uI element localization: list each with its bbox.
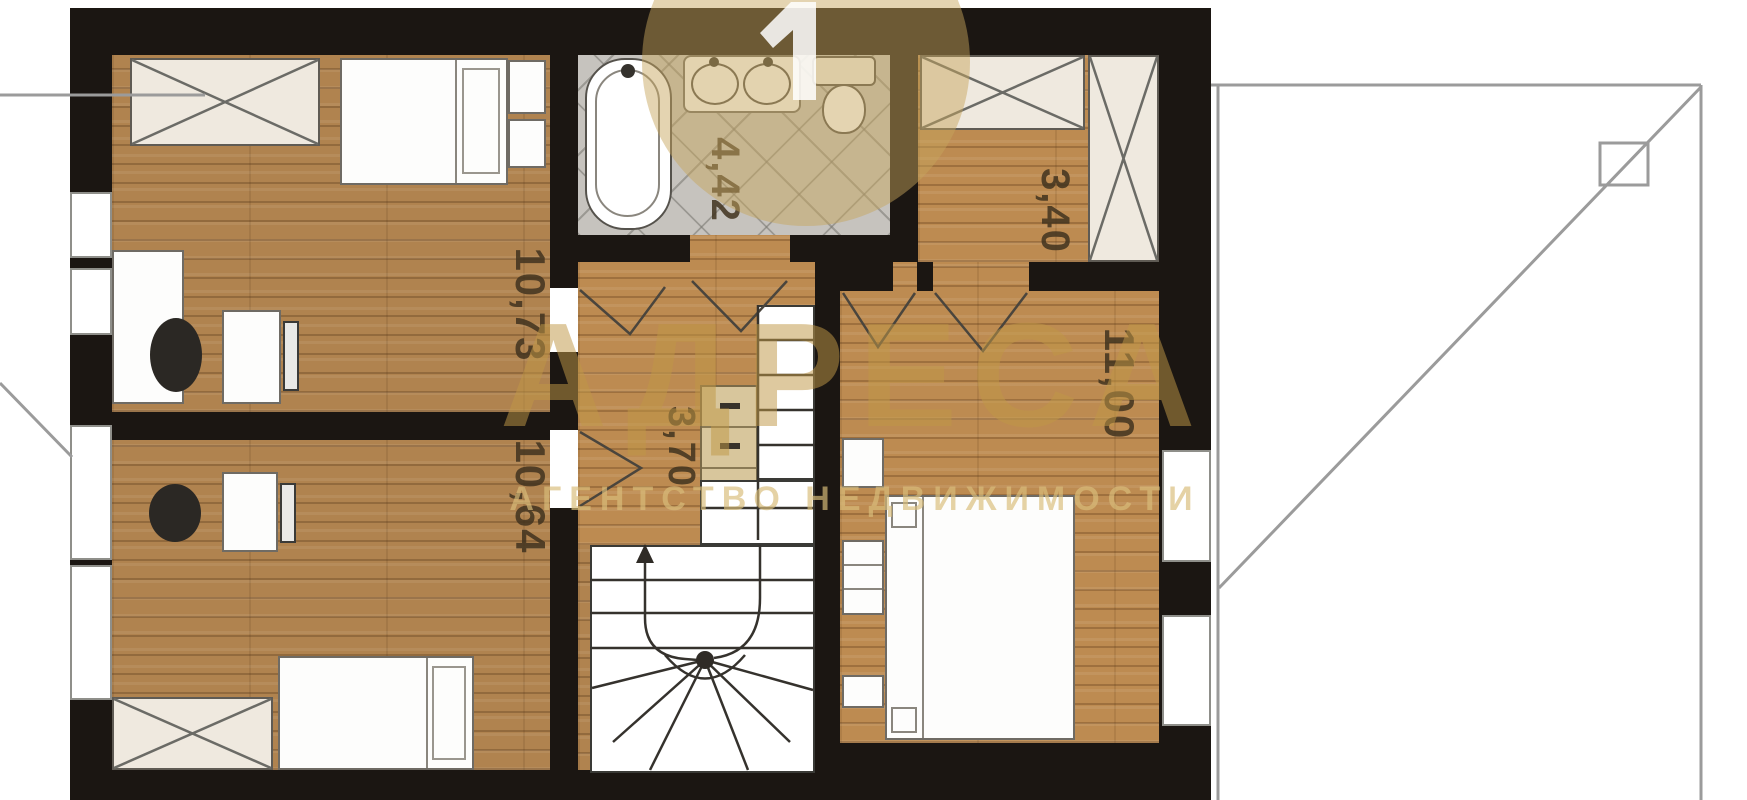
dimension-bottom-left-room: 10,64	[504, 397, 554, 597]
dimension-bathroom: 4,42	[697, 80, 747, 280]
roof-outline	[0, 85, 1701, 800]
floor-plan: 10,73 10,64 3,70 4,42 3,40 11,00 АДРЕСА …	[0, 0, 1747, 800]
staircase-lines	[590, 305, 815, 770]
plan-linework	[0, 0, 1747, 800]
dimension-top-left-room: 10,73	[504, 205, 554, 405]
wardrobe-x-marks	[114, 57, 1157, 768]
dimension-hallway: 3,70	[652, 347, 702, 547]
door-swing-icons	[580, 281, 1027, 506]
dimension-closet: 3,40	[1027, 111, 1077, 311]
dimension-right-room: 11,00	[1093, 284, 1143, 484]
